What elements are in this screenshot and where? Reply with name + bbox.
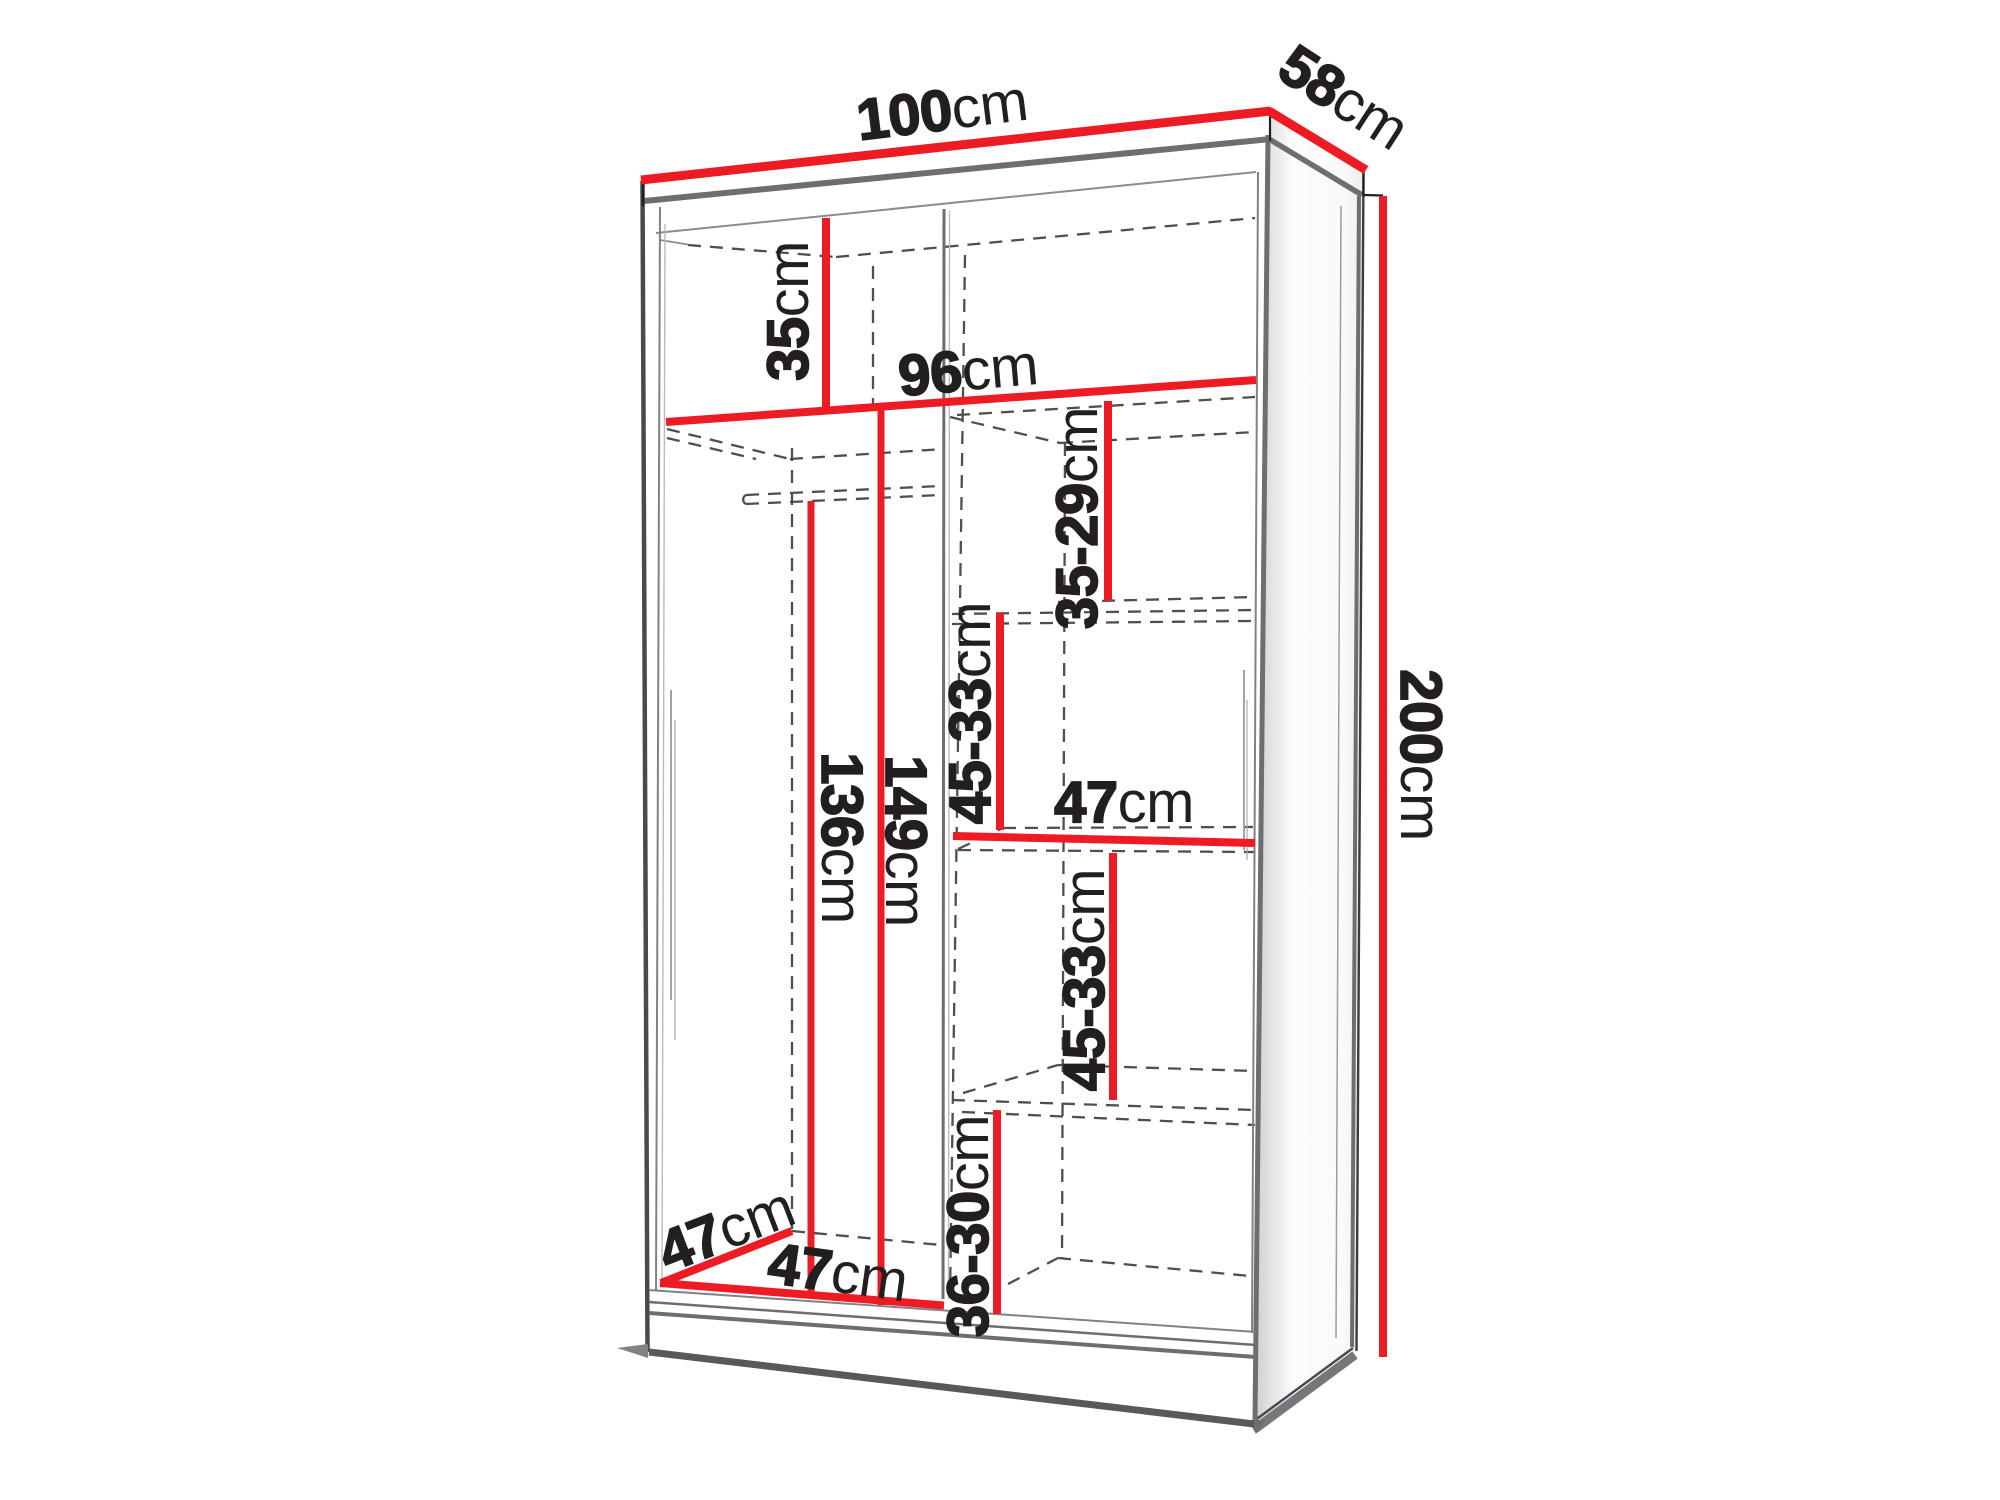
svg-text:36-30cm: 36-30cm [936, 1115, 1001, 1337]
svg-text:35-29cm: 35-29cm [1045, 407, 1110, 629]
svg-text:35cm: 35cm [756, 241, 821, 381]
svg-text:200cm: 200cm [1389, 669, 1454, 841]
svg-text:136cm: 136cm [810, 752, 875, 924]
svg-text:96cm: 96cm [896, 332, 1041, 409]
svg-text:47cm: 47cm [1054, 770, 1194, 835]
svg-text:45-33cm: 45-33cm [938, 602, 1003, 824]
svg-text:149cm: 149cm [874, 755, 939, 927]
svg-text:45-33cm: 45-33cm [1052, 869, 1117, 1091]
